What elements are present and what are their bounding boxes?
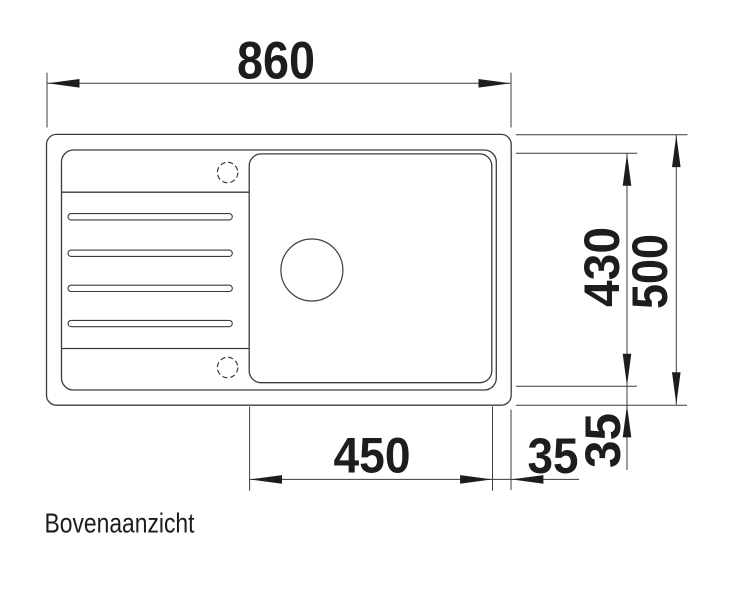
svg-text:Bovenaanzicht: Bovenaanzicht: [45, 508, 195, 539]
svg-text:35: 35: [528, 428, 579, 484]
svg-text:450: 450: [334, 428, 411, 484]
svg-text:500: 500: [622, 234, 678, 309]
svg-text:860: 860: [237, 32, 315, 91]
svg-text:35: 35: [575, 413, 631, 468]
